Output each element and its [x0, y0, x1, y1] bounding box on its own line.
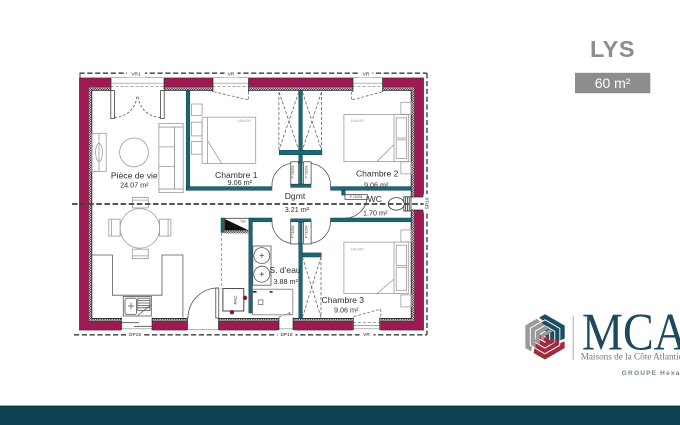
svg-text:TDF: TDF [240, 220, 246, 224]
svg-text:WC: WC [368, 194, 382, 204]
svg-text:24.07 m²: 24.07 m² [120, 180, 149, 189]
svg-text:140x200: 140x200 [351, 247, 364, 251]
svg-text:60 m²: 60 m² [595, 75, 631, 91]
svg-text:P 73/204: P 73/204 [291, 165, 295, 178]
svg-text:VR: VR [363, 72, 370, 78]
svg-text:9.06 m²: 9.06 m² [334, 306, 359, 315]
svg-text:1.70 m²: 1.70 m² [363, 208, 388, 217]
svg-text:SP10: SP10 [425, 197, 431, 209]
svg-text:Pièce de vie: Pièce de vie [111, 171, 158, 181]
svg-text:Chambre 2: Chambre 2 [356, 168, 399, 178]
svg-text:LYS: LYS [590, 36, 635, 62]
svg-text:GROUPE HexaOM: GROUPE HexaOM [622, 370, 680, 377]
svg-text:3.21 m²: 3.21 m² [285, 205, 310, 214]
svg-text:VR: VR [363, 332, 370, 338]
svg-text:VR1: VR1 [131, 72, 141, 78]
svg-text:Dgmt: Dgmt [285, 191, 306, 201]
svg-text:140x200: 140x200 [238, 119, 251, 123]
svg-text:P 71/204: P 71/204 [291, 225, 295, 238]
svg-text:DP15: DP15 [129, 332, 141, 338]
svg-text:VR: VR [228, 72, 235, 78]
svg-text:P 73/204: P 73/204 [304, 165, 308, 178]
svg-text:3.88 m²: 3.88 m² [274, 277, 299, 286]
svg-text:140x200: 140x200 [351, 119, 364, 123]
svg-text:Chambre 3: Chambre 3 [322, 295, 365, 305]
svg-text:P 71/204: P 71/204 [304, 225, 308, 238]
svg-text:Maisons de la Côte Atlantique: Maisons de la Côte Atlantique [581, 351, 680, 361]
svg-text:S. d'eau: S. d'eau [269, 265, 300, 275]
svg-text:PAC: PAC [233, 295, 238, 305]
svg-text:DP18: DP18 [281, 332, 293, 338]
svg-text:P 73/204: P 73/204 [350, 195, 363, 199]
svg-text:9.06 m²: 9.06 m² [364, 180, 389, 189]
svg-text:9.06 m²: 9.06 m² [228, 178, 253, 187]
